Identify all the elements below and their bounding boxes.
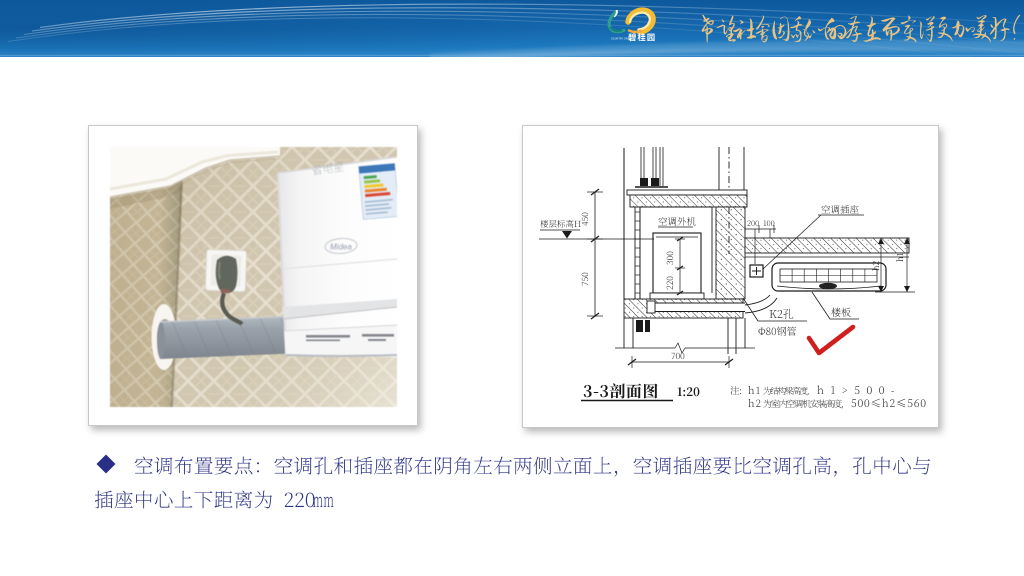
svg-text:Midea: Midea [330, 243, 352, 252]
svg-text:COUNTRY GARDEN: COUNTRY GARDEN [611, 37, 635, 40]
